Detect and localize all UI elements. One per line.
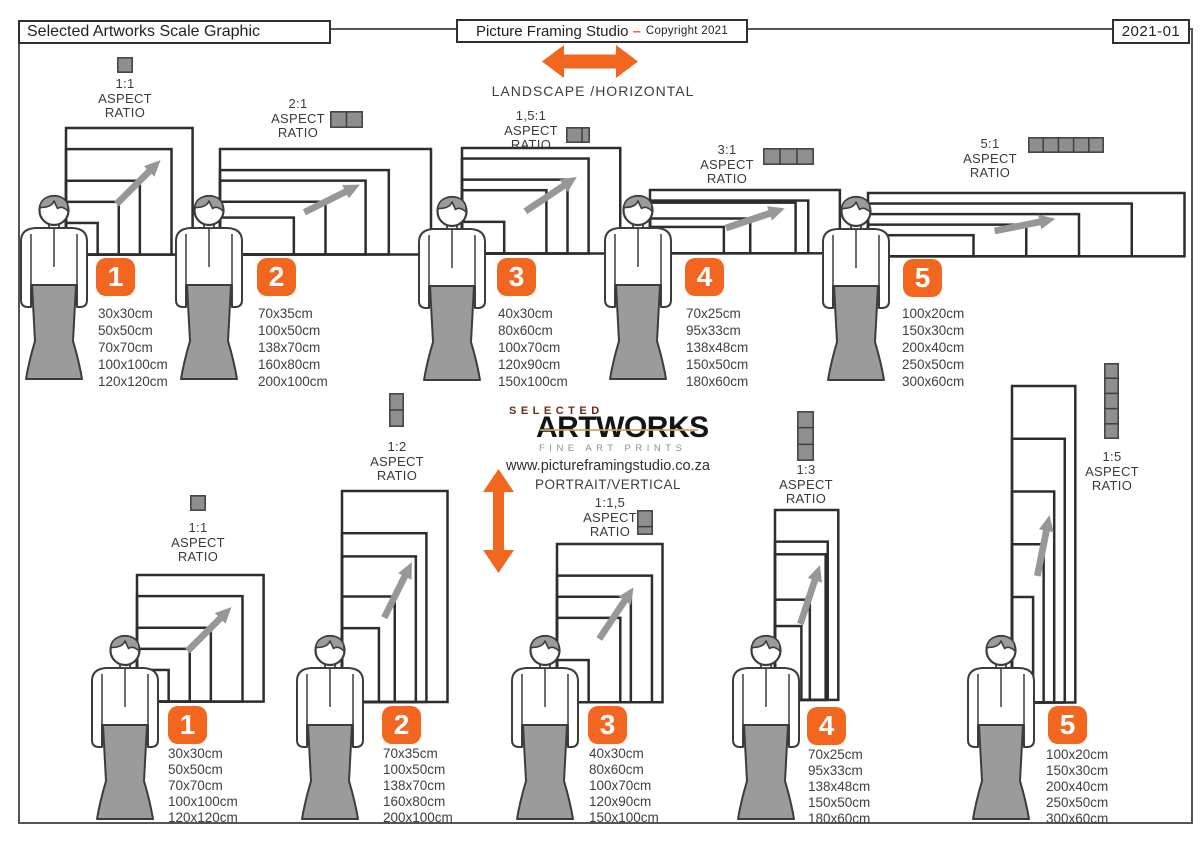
aspect-caption-line: ASPECT bbox=[963, 152, 1017, 167]
size-item: 80x60cm bbox=[589, 762, 659, 778]
size-item: 95x33cm bbox=[686, 322, 748, 339]
size-item: 100x50cm bbox=[258, 322, 328, 339]
scale-graphic-poster: Selected Artworks Scale Graphic Picture … bbox=[0, 0, 1200, 842]
aspect-ratio-label: 1:2ASPECTRATIO bbox=[370, 440, 424, 484]
aspect-caption-line: ASPECT bbox=[700, 158, 754, 173]
aspect-ratio-cells-icon-landscape-3 bbox=[566, 127, 590, 143]
logo-artworks-text: ARTWORKS bbox=[536, 413, 709, 443]
aspect-caption-line: RATIO bbox=[98, 106, 152, 121]
size-item: 120x120cm bbox=[168, 810, 238, 826]
size-item: 50x50cm bbox=[168, 762, 238, 778]
aspect-ratio-cells-icon-portrait-1 bbox=[190, 495, 206, 511]
aspect-caption-line: RATIO bbox=[370, 469, 424, 484]
size-item: 250x50cm bbox=[1046, 795, 1108, 811]
aspect-ratio-cells-icon-landscape-5 bbox=[1028, 137, 1104, 153]
group-number-badge-1: 1 bbox=[96, 258, 135, 296]
size-list-landscape-3: 40x30cm80x60cm100x70cm120x90cm150x100cm bbox=[498, 305, 568, 390]
aspect-ratio-label: 1:1,5ASPECTRATIO bbox=[583, 496, 637, 540]
size-list-portrait-1: 30x30cm50x50cm70x70cm100x100cm120x120cm bbox=[168, 746, 238, 826]
size-list-landscape-1: 30x30cm50x50cm70x70cm100x100cm120x120cm bbox=[98, 305, 168, 390]
size-item: 200x100cm bbox=[383, 810, 453, 826]
aspect-ratio-cells-icon-portrait-2 bbox=[389, 393, 404, 427]
portrait-section-label: PORTRAIT/VERTICAL bbox=[535, 477, 681, 492]
aspect-ratio-label: 2:1ASPECTRATIO bbox=[271, 97, 325, 141]
size-item: 160x80cm bbox=[258, 356, 328, 373]
size-item: 120x90cm bbox=[498, 356, 568, 373]
aspect-ratio-label: 1,5:1ASPECTRATIO bbox=[504, 109, 558, 153]
aspect-caption-line: RATIO bbox=[271, 126, 325, 141]
size-item: 138x70cm bbox=[258, 339, 328, 356]
group-number-badge-3: 3 bbox=[497, 258, 536, 296]
aspect-caption-line: RATIO bbox=[504, 138, 558, 153]
aspect-caption-line: RATIO bbox=[779, 492, 833, 507]
aspect-ratio-value: 1:1 bbox=[98, 77, 152, 92]
size-item: 150x50cm bbox=[808, 795, 870, 811]
size-item: 138x48cm bbox=[686, 339, 748, 356]
size-list-portrait-2: 70x35cm100x50cm138x70cm160x80cm200x100cm bbox=[383, 746, 453, 826]
size-item: 150x100cm bbox=[498, 373, 568, 390]
group-number-badge-5: 5 bbox=[1048, 706, 1087, 744]
group-number-badge-4: 4 bbox=[685, 258, 724, 296]
size-item: 50x50cm bbox=[98, 322, 168, 339]
aspect-ratio-label: 5:1ASPECTRATIO bbox=[963, 137, 1017, 181]
aspect-caption-line: ASPECT bbox=[779, 478, 833, 493]
group-number-badge-3: 3 bbox=[588, 706, 627, 744]
studio-dash: – bbox=[633, 23, 641, 40]
page-title: Selected Artworks Scale Graphic bbox=[18, 20, 331, 44]
aspect-ratio-cells-icon-landscape-1 bbox=[117, 57, 133, 73]
size-item: 40x30cm bbox=[589, 746, 659, 762]
aspect-caption-line: ASPECT bbox=[1085, 465, 1139, 480]
size-item: 250x50cm bbox=[902, 356, 964, 373]
size-item: 150x100cm bbox=[589, 810, 659, 826]
group-number-badge-4: 4 bbox=[807, 707, 846, 745]
aspect-ratio-label: 1:5ASPECTRATIO bbox=[1085, 450, 1139, 494]
size-item: 100x70cm bbox=[498, 339, 568, 356]
size-item: 70x70cm bbox=[168, 778, 238, 794]
aspect-caption-line: RATIO bbox=[1085, 479, 1139, 494]
size-item: 200x40cm bbox=[1046, 779, 1108, 795]
group-number-badge-1: 1 bbox=[168, 706, 207, 744]
studio-header: Picture Framing Studio – Copyright 2021 bbox=[456, 19, 748, 43]
size-item: 100x20cm bbox=[902, 305, 964, 322]
aspect-ratio-value: 1:5 bbox=[1085, 450, 1139, 465]
aspect-caption-line: ASPECT bbox=[370, 455, 424, 470]
aspect-ratio-value: 1:1,5 bbox=[583, 496, 637, 511]
aspect-ratio-value: 1:3 bbox=[779, 463, 833, 478]
landscape-section-label: LANDSCAPE /HORIZONTAL bbox=[492, 83, 695, 99]
aspect-ratio-cells-icon-landscape-4 bbox=[763, 148, 814, 165]
size-list-portrait-4: 70x25cm95x33cm138x48cm150x50cm180x60cm bbox=[808, 747, 870, 827]
size-item: 70x25cm bbox=[808, 747, 870, 763]
copyright-text: Copyright 2021 bbox=[646, 25, 728, 37]
size-item: 30x30cm bbox=[168, 746, 238, 762]
size-item: 180x60cm bbox=[686, 373, 748, 390]
aspect-ratio-value: 5:1 bbox=[963, 137, 1017, 152]
size-list-landscape-2: 70x35cm100x50cm138x70cm160x80cm200x100cm bbox=[258, 305, 328, 390]
aspect-ratio-label: 3:1ASPECTRATIO bbox=[700, 143, 754, 187]
size-item: 100x100cm bbox=[168, 794, 238, 810]
size-item: 40x30cm bbox=[498, 305, 568, 322]
size-list-landscape-4: 70x25cm95x33cm138x48cm150x50cm180x60cm bbox=[686, 305, 748, 390]
size-item: 200x40cm bbox=[902, 339, 964, 356]
group-number-badge-2: 2 bbox=[257, 258, 296, 296]
size-item: 100x70cm bbox=[589, 778, 659, 794]
document-number: 2021-01 bbox=[1112, 19, 1190, 44]
aspect-caption-line: RATIO bbox=[583, 525, 637, 540]
size-item: 138x48cm bbox=[808, 779, 870, 795]
size-item: 95x33cm bbox=[808, 763, 870, 779]
size-item: 100x100cm bbox=[98, 356, 168, 373]
size-item: 150x50cm bbox=[686, 356, 748, 373]
aspect-ratio-value: 1:2 bbox=[370, 440, 424, 455]
size-item: 120x120cm bbox=[98, 373, 168, 390]
aspect-caption-line: RATIO bbox=[700, 172, 754, 187]
logo-fine-art-prints-text: FINE ART PRINTS bbox=[539, 443, 686, 454]
group-number-badge-2: 2 bbox=[382, 706, 421, 744]
size-item: 30x30cm bbox=[98, 305, 168, 322]
size-item: 70x70cm bbox=[98, 339, 168, 356]
aspect-ratio-value: 3:1 bbox=[700, 143, 754, 158]
aspect-ratio-value: 2:1 bbox=[271, 97, 325, 112]
size-item: 120x90cm bbox=[589, 794, 659, 810]
aspect-ratio-cells-icon-portrait-4 bbox=[797, 411, 814, 461]
size-item: 300x60cm bbox=[902, 373, 964, 390]
logo-gold-line bbox=[540, 429, 698, 431]
size-item: 180x60cm bbox=[808, 811, 870, 827]
size-item: 160x80cm bbox=[383, 794, 453, 810]
group-number-badge-5: 5 bbox=[903, 259, 942, 297]
aspect-caption-line: ASPECT bbox=[171, 536, 225, 551]
aspect-ratio-value: 1:1 bbox=[171, 521, 225, 536]
aspect-ratio-cells-icon-portrait-5 bbox=[1104, 363, 1119, 439]
aspect-caption-line: ASPECT bbox=[98, 92, 152, 107]
size-item: 300x60cm bbox=[1046, 811, 1108, 827]
aspect-ratio-label: 1:3ASPECTRATIO bbox=[779, 463, 833, 507]
aspect-caption-line: ASPECT bbox=[271, 112, 325, 127]
aspect-caption-line: ASPECT bbox=[504, 124, 558, 139]
studio-name: Picture Framing Studio bbox=[476, 23, 629, 40]
size-item: 80x60cm bbox=[498, 322, 568, 339]
size-item: 70x35cm bbox=[383, 746, 453, 762]
aspect-ratio-label: 1:1ASPECTRATIO bbox=[98, 77, 152, 121]
size-list-portrait-5: 100x20cm150x30cm200x40cm250x50cm300x60cm bbox=[1046, 747, 1108, 827]
aspect-ratio-label: 1:1ASPECTRATIO bbox=[171, 521, 225, 565]
website-url: www.pictureframingstudio.co.za bbox=[506, 458, 710, 474]
size-list-portrait-3: 40x30cm80x60cm100x70cm120x90cm150x100cm bbox=[589, 746, 659, 826]
aspect-caption-line: RATIO bbox=[963, 166, 1017, 181]
size-item: 138x70cm bbox=[383, 778, 453, 794]
size-item: 100x50cm bbox=[383, 762, 453, 778]
vertical-double-arrow-icon bbox=[483, 469, 514, 573]
size-item: 150x30cm bbox=[902, 322, 964, 339]
aspect-ratio-value: 1,5:1 bbox=[504, 109, 558, 124]
size-item: 200x100cm bbox=[258, 373, 328, 390]
horizontal-double-arrow-icon bbox=[542, 45, 638, 78]
size-item: 70x35cm bbox=[258, 305, 328, 322]
size-item: 70x25cm bbox=[686, 305, 748, 322]
aspect-ratio-cells-icon-portrait-3 bbox=[637, 510, 653, 535]
aspect-caption-line: ASPECT bbox=[583, 511, 637, 526]
size-item: 100x20cm bbox=[1046, 747, 1108, 763]
aspect-ratio-cells-icon-landscape-2 bbox=[330, 111, 363, 128]
size-list-landscape-5: 100x20cm150x30cm200x40cm250x50cm300x60cm bbox=[902, 305, 964, 390]
size-item: 150x30cm bbox=[1046, 763, 1108, 779]
aspect-caption-line: RATIO bbox=[171, 550, 225, 565]
